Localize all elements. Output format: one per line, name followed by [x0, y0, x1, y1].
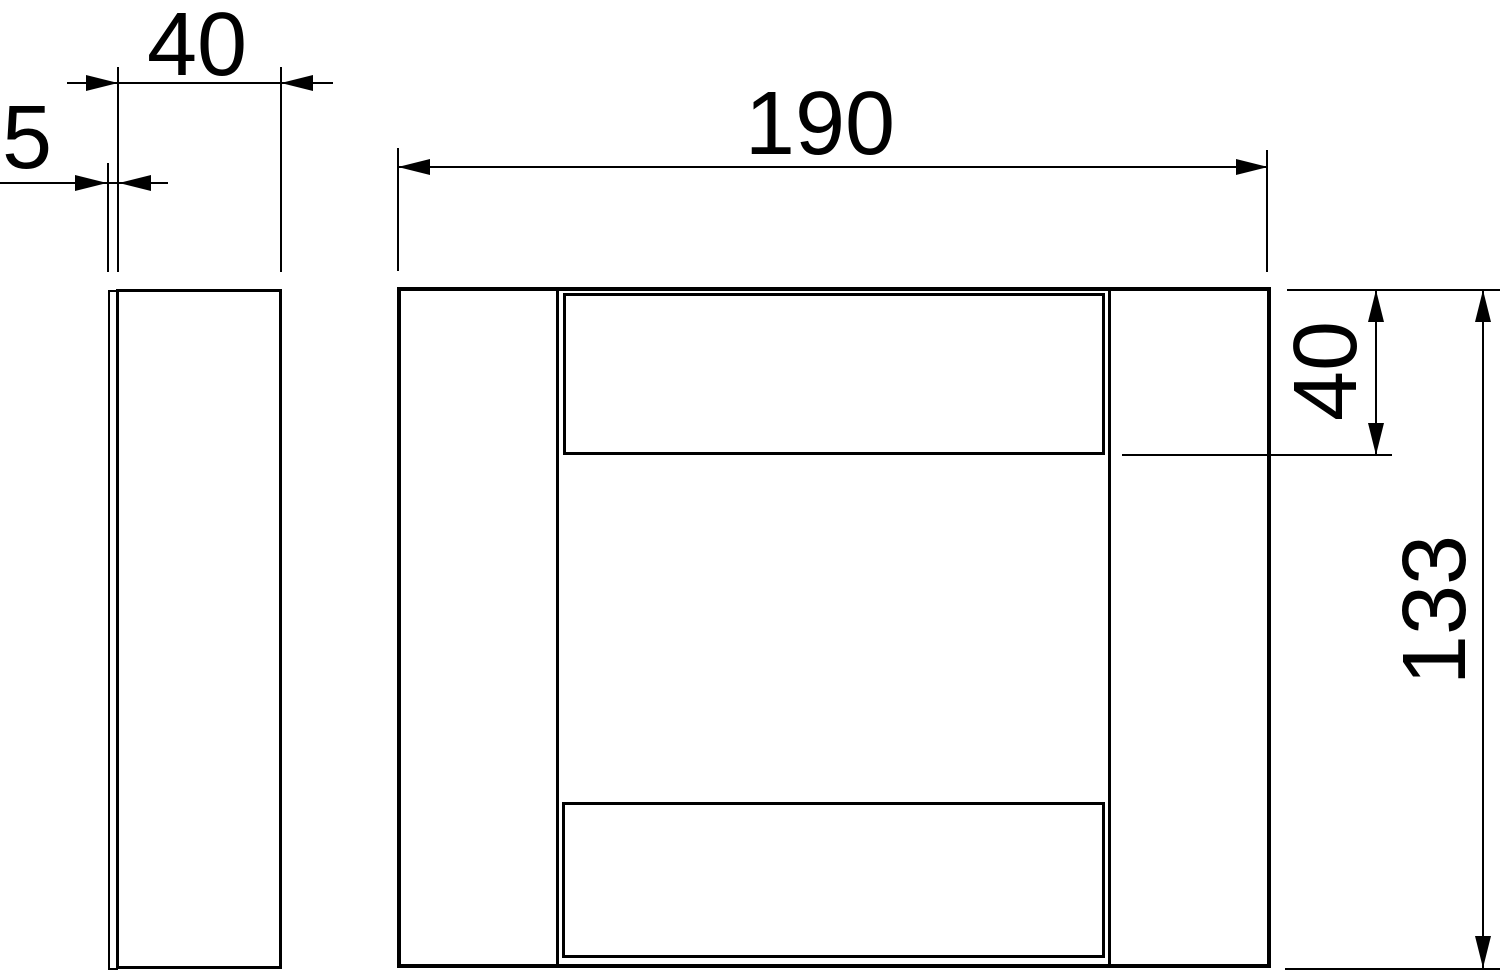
- dim-extension-line-bottom-right: [1285, 968, 1500, 970]
- dim-front-height-text: 133: [1390, 535, 1480, 685]
- dim-front-height-arrowhead-down: [1475, 936, 1491, 968]
- dim-front-height: 133: [0, 0, 1500, 972]
- drawing-canvas: 40 5 190 40 133: [0, 0, 1500, 972]
- dim-front-height-line: [1482, 290, 1484, 968]
- dim-front-height-arrowhead-up: [1475, 290, 1491, 322]
